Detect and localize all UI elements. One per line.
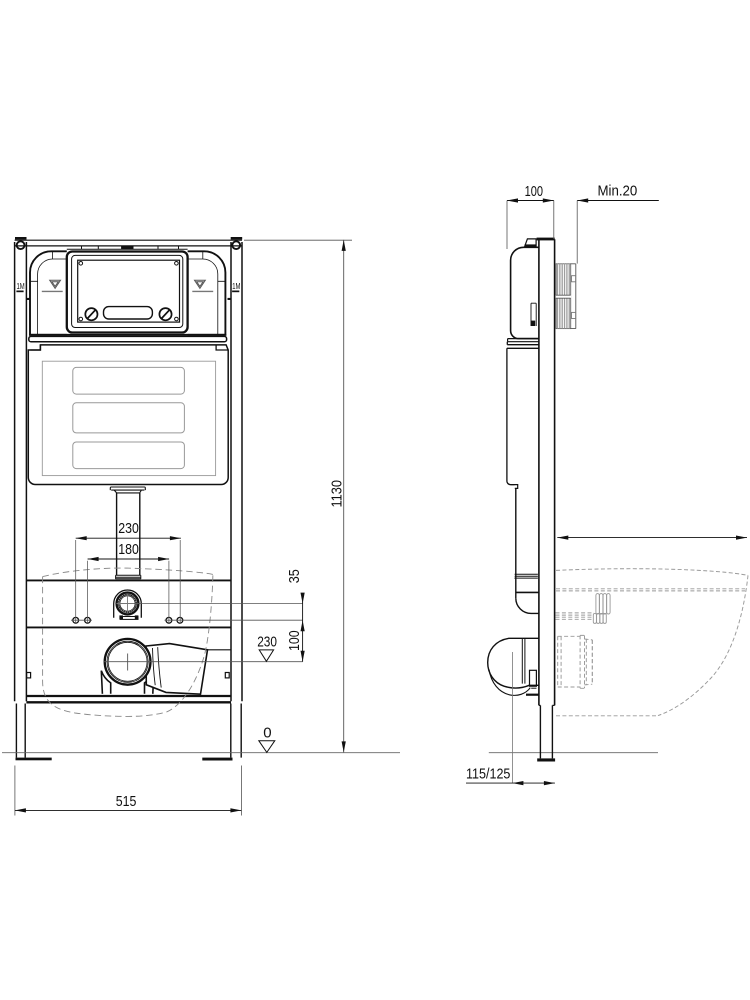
svg-text:230: 230: [118, 520, 139, 537]
svg-text:230: 230: [257, 633, 277, 650]
svg-text:180: 180: [118, 541, 139, 558]
svg-text:115/125: 115/125: [466, 766, 510, 783]
svg-text:Min.20: Min.20: [598, 182, 638, 199]
svg-text:1130: 1130: [328, 480, 345, 508]
svg-text:1M: 1M: [232, 281, 240, 291]
svg-text:100: 100: [525, 183, 543, 200]
svg-text:0: 0: [263, 724, 271, 741]
svg-text:100: 100: [286, 630, 303, 651]
svg-text:1M: 1M: [17, 281, 25, 291]
svg-text:35: 35: [286, 569, 303, 583]
svg-text:515: 515: [116, 793, 137, 810]
